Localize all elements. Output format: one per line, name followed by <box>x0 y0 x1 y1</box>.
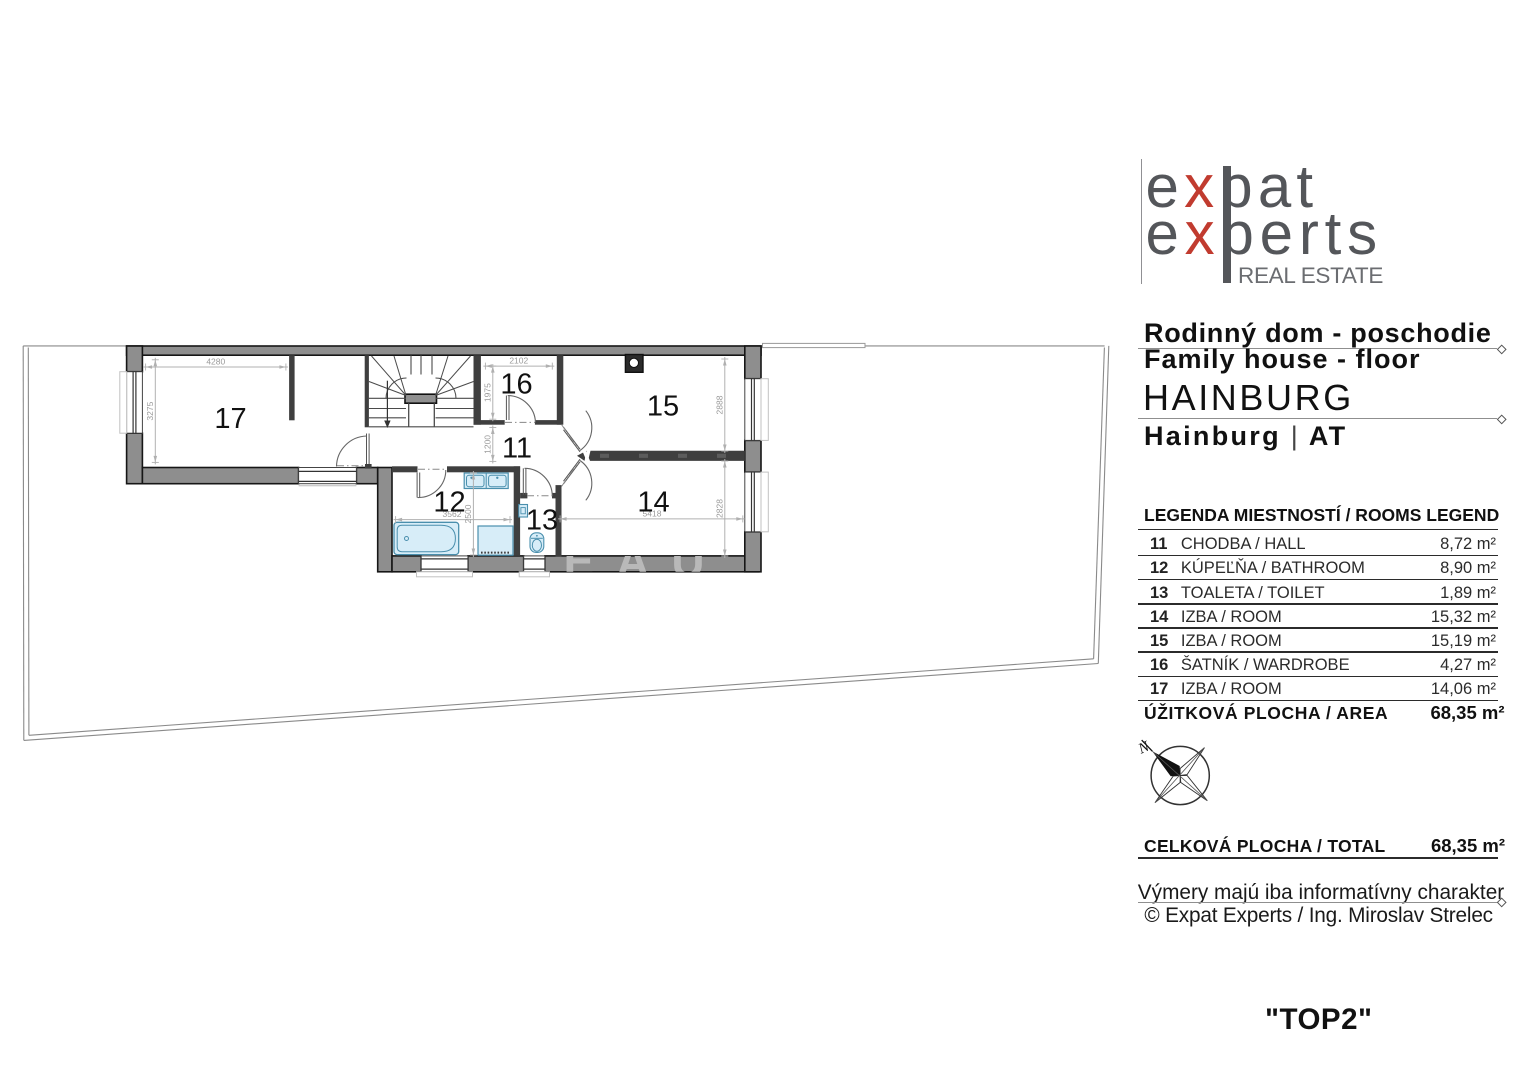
svg-text:1200: 1200 <box>482 435 492 454</box>
svg-text:2102: 2102 <box>509 356 528 366</box>
svg-text:13: 13 <box>526 505 558 537</box>
svg-text:14: 14 <box>637 486 669 518</box>
svg-text:1975: 1975 <box>482 383 492 402</box>
svg-text:EAU: EAU <box>563 535 726 587</box>
svg-text:15: 15 <box>647 391 679 423</box>
svg-text:17: 17 <box>214 403 246 435</box>
svg-text:11: 11 <box>502 433 532 465</box>
svg-text:3275: 3275 <box>145 401 155 420</box>
svg-text:12: 12 <box>433 486 465 518</box>
svg-text:16: 16 <box>500 369 532 401</box>
svg-text:2888: 2888 <box>714 395 724 414</box>
svg-text:2828: 2828 <box>714 499 724 518</box>
svg-text:4280: 4280 <box>206 357 225 367</box>
